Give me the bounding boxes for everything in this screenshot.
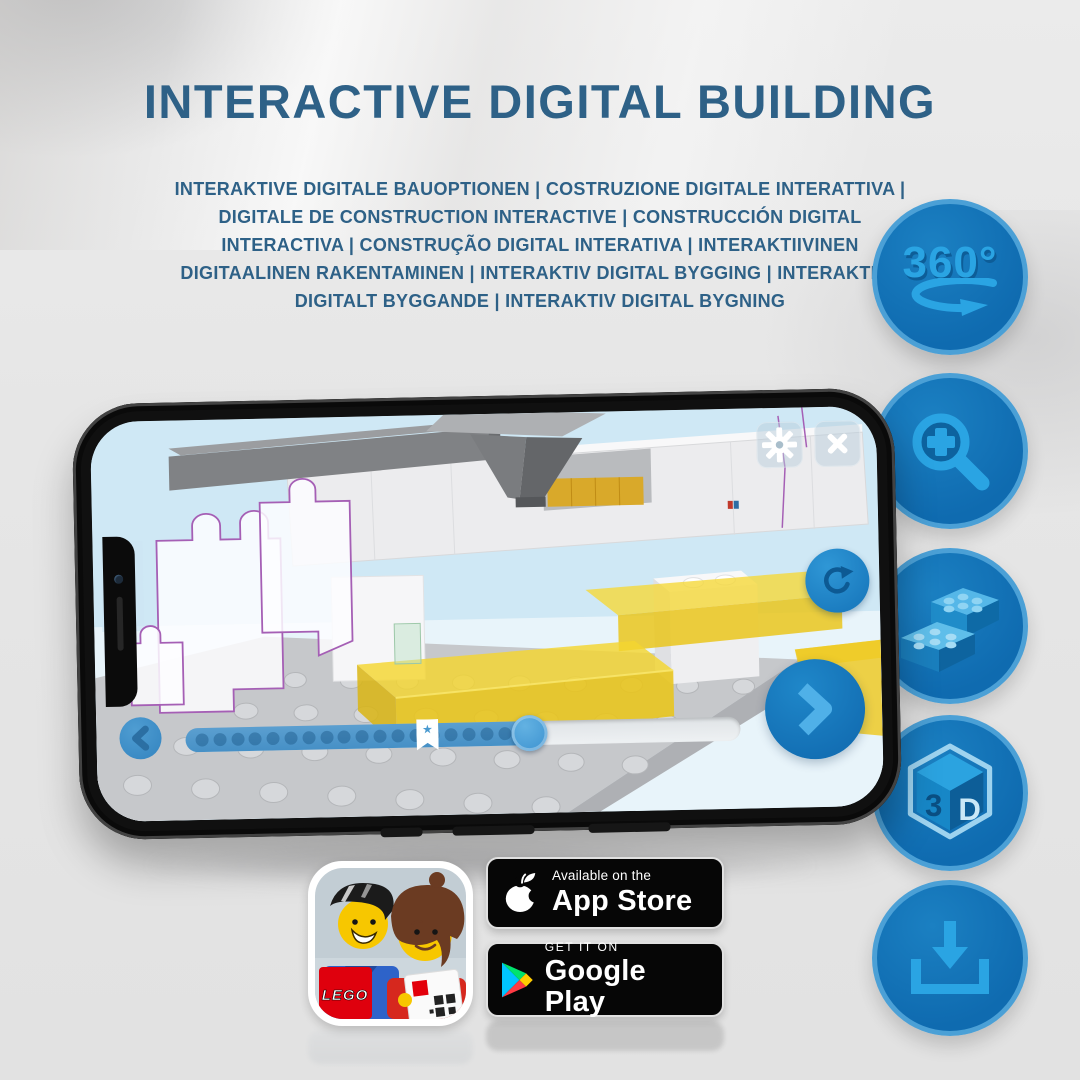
lego-app-icon[interactable]: LEGO <box>308 861 473 1026</box>
360-rotation-icon <box>894 278 1006 316</box>
chevron-left-icon <box>129 725 152 751</box>
gear-icon <box>759 424 800 465</box>
app-icon-reflection <box>308 1030 473 1064</box>
page-title: INTERACTIVE DIGITAL BUILDING <box>0 74 1080 129</box>
close-icon <box>817 423 858 464</box>
app-store-tagline: Available on the <box>552 869 692 883</box>
phone-notch <box>102 536 138 707</box>
phone-screen: ★ <box>90 406 884 822</box>
rotate-icon <box>817 560 858 601</box>
apple-icon <box>502 870 540 916</box>
phone-mockup: ★ <box>72 387 903 840</box>
feature-download-circle <box>872 880 1028 1036</box>
google-play-icon <box>502 962 533 998</box>
phone-volume-button <box>588 822 670 833</box>
earpiece-speaker <box>117 597 124 651</box>
progress-step-dots <box>195 727 529 747</box>
google-play-name: Google Play <box>545 956 708 1017</box>
app-store-badge[interactable]: Available on the App Store <box>486 857 724 929</box>
download-icon <box>907 919 993 997</box>
3d-label-left: 3 <box>925 788 942 823</box>
settings-button[interactable] <box>756 421 803 468</box>
app-store-name: App Store <box>552 886 692 917</box>
3d-cube-icon: 3 D <box>900 743 1000 843</box>
feature-360-circle: 360° <box>872 199 1028 355</box>
page-subtitle-translations: INTERAKTIVE DIGITALE BAUOPTIONEN | COSTR… <box>168 176 913 315</box>
google-play-badge[interactable]: GET IT ON Google Play <box>486 942 724 1017</box>
lego-logo-text: LEGO <box>322 987 369 1004</box>
lego-3d-scene <box>90 406 884 822</box>
lego-bricks-icon <box>897 576 1003 676</box>
star-icon: ★ <box>422 722 433 736</box>
front-camera <box>114 575 123 584</box>
chevron-right-icon <box>792 680 837 739</box>
phone-mute-switch <box>380 827 422 837</box>
google-play-reflection <box>486 1021 724 1051</box>
google-play-tagline: GET IT ON <box>545 941 708 954</box>
phone-volume-button <box>452 825 534 836</box>
3d-label-right: D <box>958 792 981 827</box>
zoom-in-magnifier-icon <box>904 405 996 497</box>
marketing-page: INTERACTIVE DIGITAL BUILDING INTERAKTIVE… <box>0 0 1080 1080</box>
close-button[interactable] <box>814 420 861 467</box>
lego-app-icon-art: LEGO <box>315 868 466 1019</box>
